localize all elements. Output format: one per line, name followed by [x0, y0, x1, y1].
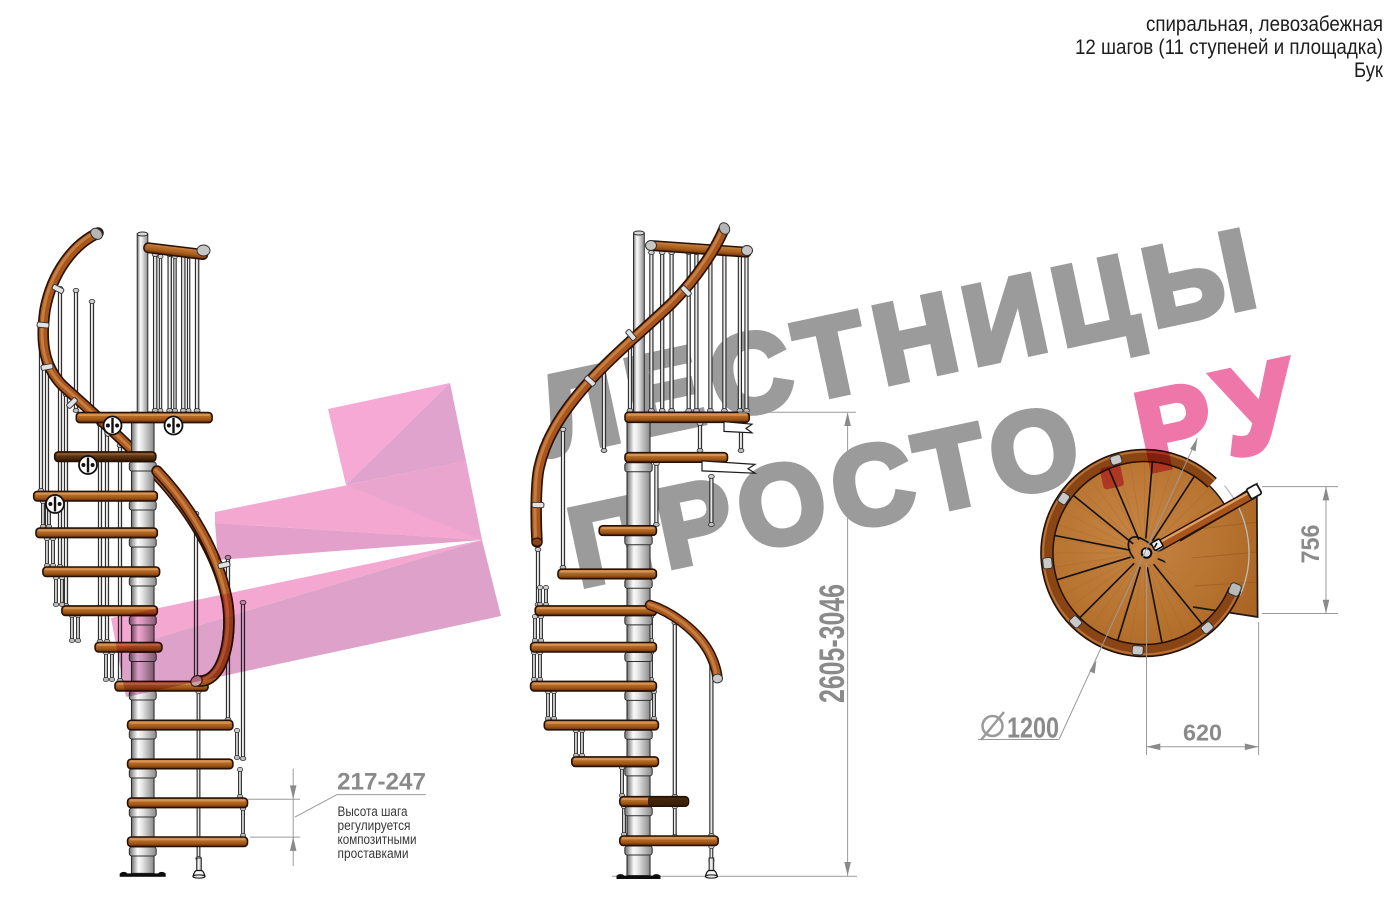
svg-text:проставками: проставками — [338, 846, 409, 861]
svg-text:Высота шага: Высота шага — [338, 804, 408, 819]
svg-text:620: 620 — [1183, 720, 1222, 746]
svg-text:Бук: Бук — [1354, 59, 1384, 82]
svg-text:1200: 1200 — [1007, 713, 1059, 745]
svg-text:композитными: композитными — [338, 832, 417, 847]
svg-text:2605-3046: 2605-3046 — [813, 584, 852, 703]
svg-text:регулируется: регулируется — [338, 818, 411, 833]
svg-text:217-247: 217-247 — [337, 769, 426, 796]
svg-text:756: 756 — [1297, 525, 1325, 564]
svg-text:12 шагов (11 ступеней и площад: 12 шагов (11 ступеней и площадка) — [1075, 36, 1383, 59]
svg-text:спиральная, левозабежная: спиральная, левозабежная — [1146, 13, 1383, 36]
